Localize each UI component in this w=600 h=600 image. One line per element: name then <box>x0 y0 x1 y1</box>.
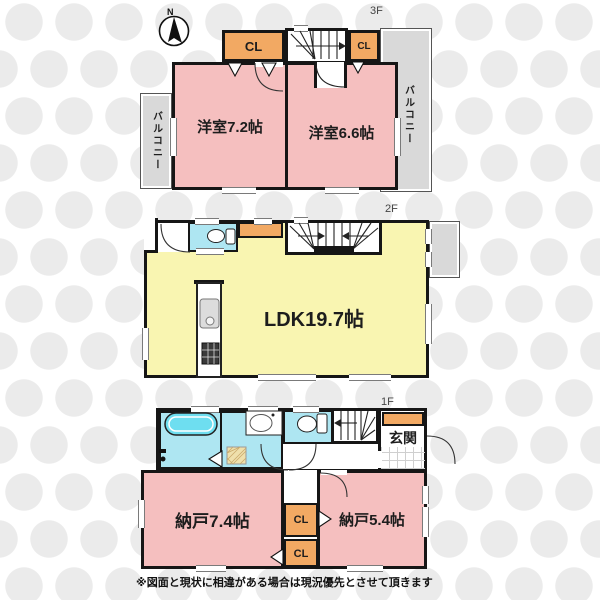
floor1-label: 1F <box>381 396 394 408</box>
closet-right-3f: CL <box>348 30 380 62</box>
compass-icon: N <box>160 7 189 46</box>
toilet-room-1f <box>283 410 333 444</box>
entrance-tiles <box>381 447 425 469</box>
disclaimer-text: ※図面と現状に相違がある場合は現況優先とさせて頂きます <box>136 574 433 590</box>
balcony-right-label-wrap: バルコニー <box>396 55 420 175</box>
floor3-label: 3F <box>370 5 383 17</box>
balcony-left-label: バルコニー <box>149 111 164 171</box>
window <box>422 486 429 504</box>
window <box>222 187 256 194</box>
window <box>138 500 145 528</box>
window <box>195 218 219 225</box>
floor2-label: 2F <box>385 203 398 215</box>
window <box>425 229 432 244</box>
closet-left-label: CL <box>245 39 262 54</box>
compass-north-label: N <box>167 7 174 17</box>
window <box>425 304 432 344</box>
storage-east-label: 納戸5.4帖 <box>339 509 405 530</box>
washroom <box>220 411 283 469</box>
window <box>422 507 429 537</box>
door-opening-3f <box>255 62 283 67</box>
window <box>258 374 316 381</box>
room-west-label: 洋室7.2帖 <box>197 116 263 137</box>
wall-notch-2f <box>144 218 158 253</box>
window <box>325 187 359 194</box>
balcony-left: バルコニー <box>140 93 172 189</box>
wall-segment <box>281 565 320 569</box>
closet-lower-label: CL <box>294 548 309 560</box>
window <box>170 118 177 156</box>
storage-east-room: 納戸5.4帖 <box>317 470 427 569</box>
ldk-label: LDK19.7帖 <box>264 303 364 332</box>
sliding-door-2f <box>196 248 224 255</box>
ldk-label-wrap: LDK19.7帖 <box>234 306 394 328</box>
entrance-label: 玄関 <box>389 428 417 448</box>
window <box>254 218 272 225</box>
staircase-1f <box>331 408 379 444</box>
shoe-cabinet <box>382 412 424 426</box>
window <box>347 565 383 572</box>
floor-plan-canvas: 3F バルコニー 洋室7.2帖 洋室6.6帖 CL CL バルコニー 2F LD… <box>0 0 600 600</box>
window <box>294 217 308 224</box>
staircase-2f <box>285 220 382 255</box>
kitchen-counter <box>196 282 222 378</box>
window <box>425 252 432 267</box>
door-opening-storage-east <box>321 470 347 475</box>
window <box>294 25 308 32</box>
closet-right-label: CL <box>357 41 370 52</box>
window <box>142 328 149 360</box>
window <box>349 374 391 381</box>
balcony-2f <box>429 221 460 278</box>
bathroom <box>159 411 222 469</box>
stair-landing-3f <box>314 62 347 88</box>
closet-left-3f: CL <box>222 30 285 62</box>
window <box>191 406 219 413</box>
door-opening-entrance <box>376 451 382 468</box>
hall-2f <box>158 223 190 252</box>
room-east-label: 洋室6.6帖 <box>309 122 375 143</box>
staircase-3f <box>285 28 348 64</box>
closet-upper-label: CL <box>294 514 309 526</box>
storage-west-room: 納戸7.4帖 <box>141 470 284 569</box>
window <box>248 406 278 413</box>
closet-upper-1f: CL <box>284 503 318 537</box>
entrance-label-wrap: 玄関 <box>383 430 423 446</box>
storage-west-label: 納戸7.4帖 <box>175 507 250 532</box>
room-west-3f: 洋室7.2帖 <box>172 62 288 190</box>
window <box>196 565 226 572</box>
window <box>293 406 319 413</box>
balcony-right-label: バルコニー <box>401 85 416 145</box>
